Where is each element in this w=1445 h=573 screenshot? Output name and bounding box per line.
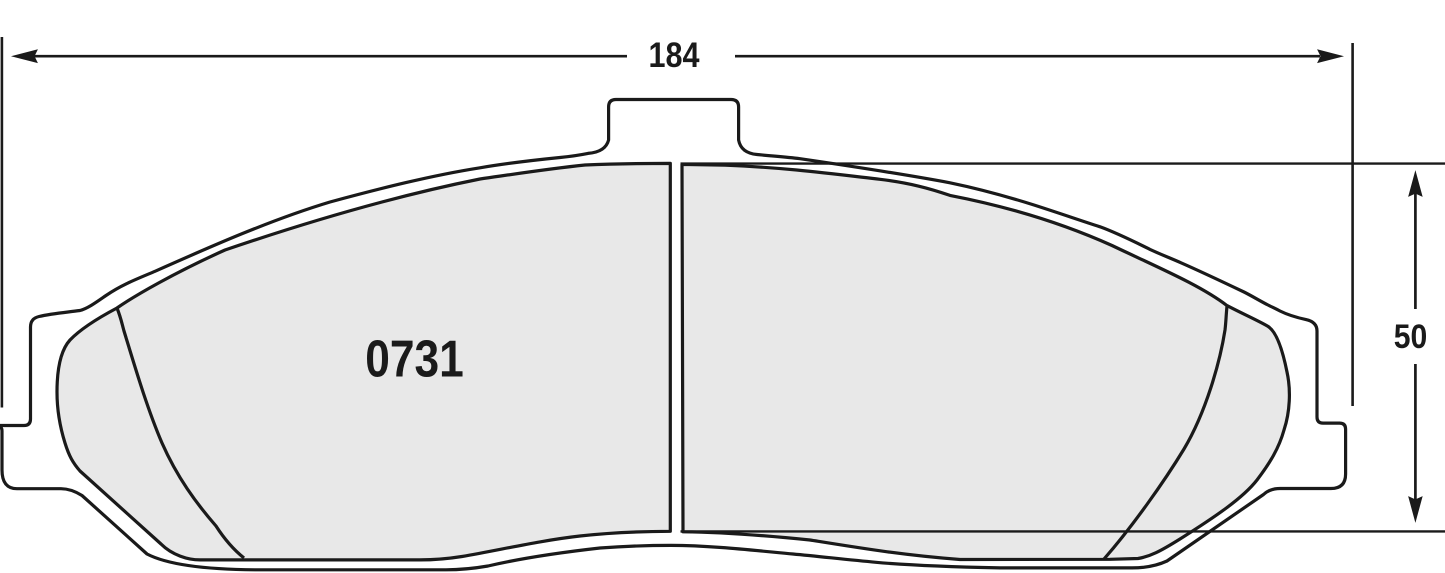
svg-text:0731: 0731 (365, 330, 464, 388)
svg-text:50: 50 (1394, 318, 1428, 356)
svg-text:184: 184 (649, 36, 701, 75)
